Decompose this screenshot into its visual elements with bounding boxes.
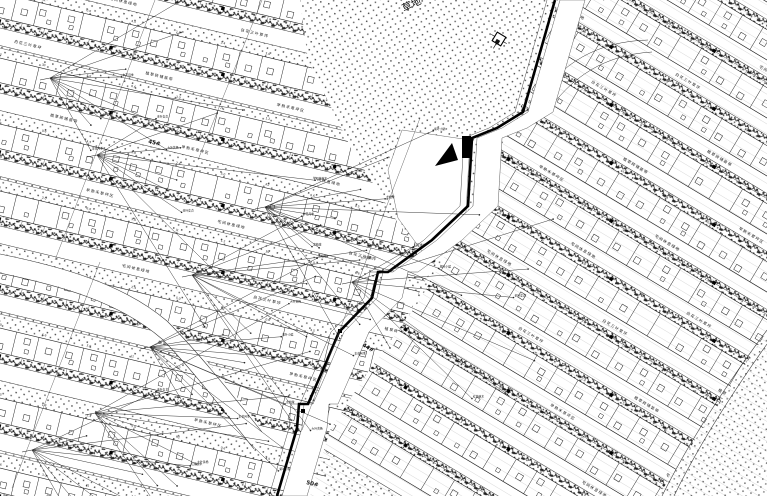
- micro-text: 丰花月季: [354, 352, 365, 356]
- micro-text: 大叶黄杨: [290, 300, 301, 304]
- cad-plan-canvas: 3.0J11.2302.06.63.0J11.2302.06.6宅间休息绿地白花…: [0, 0, 767, 496]
- micro-text: 金叶女贞: [515, 293, 526, 297]
- line-block: [462, 136, 471, 158]
- micro-text: 龙柏球: [318, 254, 327, 258]
- micro-text: 紫叶小檗: [434, 127, 445, 131]
- micro-text: 丰花月季: [92, 146, 103, 150]
- micro-text: 丰花月季: [239, 415, 250, 419]
- micro-text: 丰花月季: [303, 212, 314, 216]
- micro-text: 龙柏球: [286, 400, 295, 404]
- micro-text: 紫叶小檗: [282, 333, 293, 337]
- micro-text: 丰花月季: [122, 73, 133, 77]
- micro-text: 大叶黄杨: [311, 426, 322, 430]
- micro-text: 金叶女贞: [183, 208, 194, 212]
- micro-text: 红花继木: [473, 395, 484, 399]
- micro-text: 紫叶小檗: [279, 467, 290, 471]
- site-plan-drawing: 3.0J11.2302.06.63.0J11.2302.06.6宅间休息绿地白花…: [0, 0, 767, 496]
- micro-text: 龙柏球: [386, 195, 395, 199]
- micro-text: 金叶女贞: [157, 388, 168, 392]
- micro-text: 红花继木: [414, 243, 425, 247]
- micro-text: 龙柏球: [313, 243, 322, 247]
- micro-text: 红花继木: [191, 462, 202, 466]
- micro-text: 紫叶小檗: [440, 264, 451, 268]
- micro-text: 大叶黄杨: [361, 256, 372, 260]
- micro-text: 金叶女贞: [157, 115, 168, 119]
